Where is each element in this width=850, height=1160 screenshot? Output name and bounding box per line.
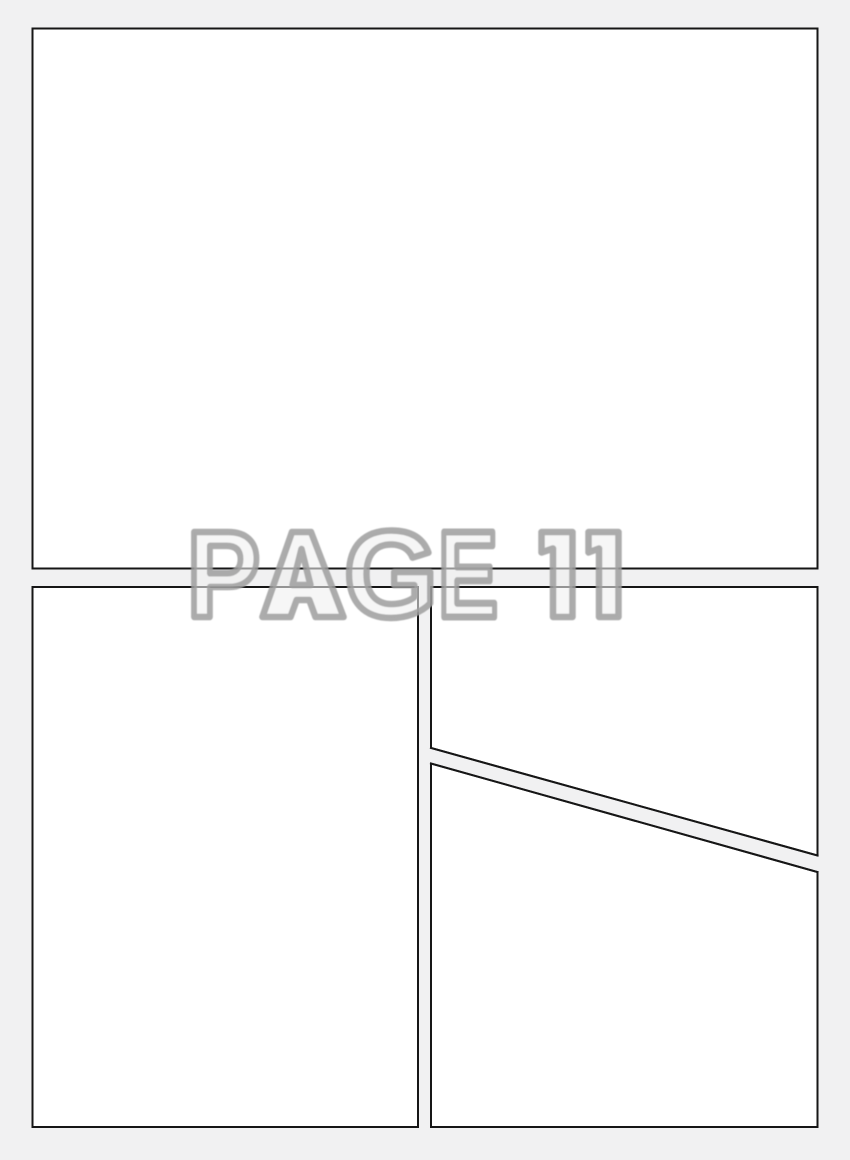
svg-text:E: E [438,505,498,643]
svg-text:G: G [344,506,438,644]
svg-text:P: P [187,505,261,643]
